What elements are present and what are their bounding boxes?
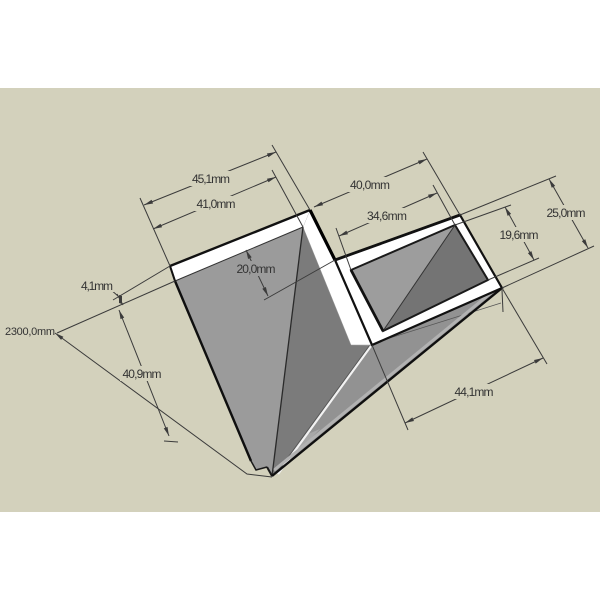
svg-text:2300,0mm: 2300,0mm [5,326,55,338]
svg-text:19,6mm: 19,6mm [500,228,539,242]
svg-text:45,1mm: 45,1mm [192,172,230,186]
svg-text:4,1mm: 4,1mm [81,279,113,293]
svg-text:40,0mm: 40,0mm [350,178,390,192]
svg-text:25,0mm: 25,0mm [547,206,586,220]
svg-text:41,0mm: 41,0mm [197,197,236,211]
svg-text:44,1mm: 44,1mm [455,385,494,399]
svg-text:20,0mm: 20,0mm [237,262,276,276]
svg-text:34,6mm: 34,6mm [367,209,407,223]
svg-text:40,9mm: 40,9mm [123,367,162,381]
